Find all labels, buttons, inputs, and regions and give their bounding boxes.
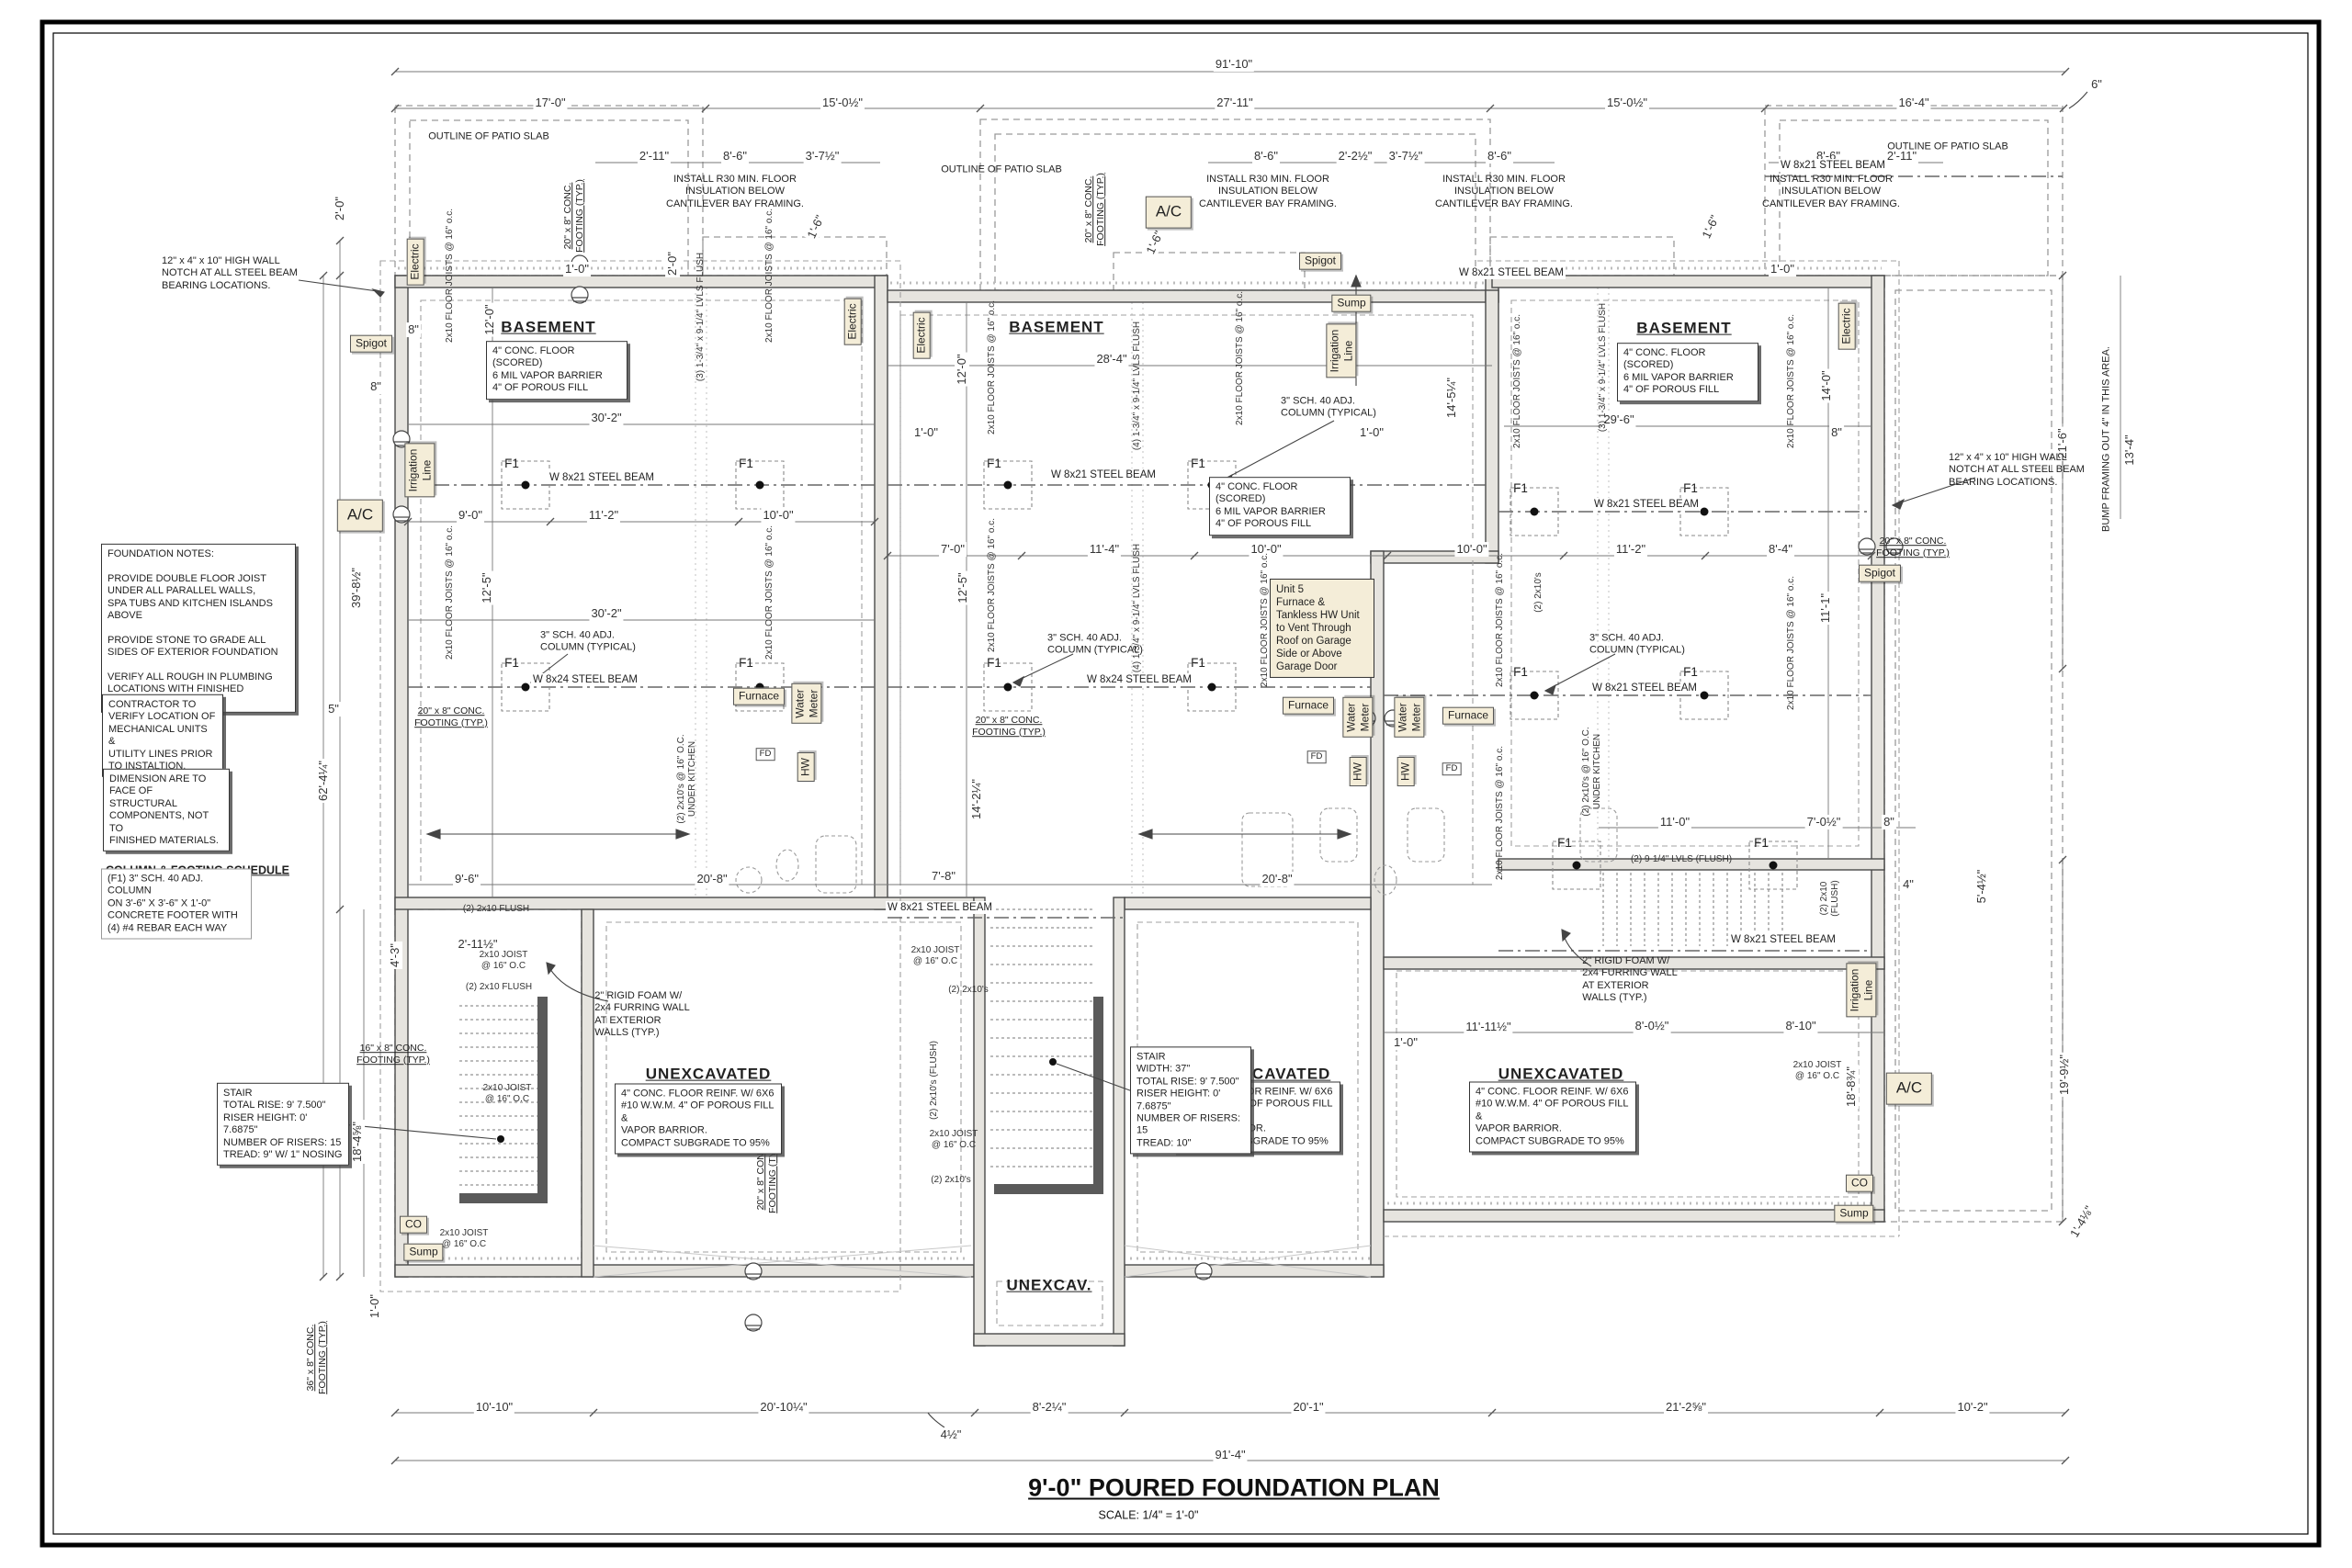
dimension-label: 2'-0" (333, 195, 347, 222)
dimension-label: 9'-6" (453, 872, 481, 886)
joist-label: (2) 2x10's (1533, 572, 1544, 613)
dimension-label: 20'-1" (1291, 1400, 1325, 1415)
column-marker-f1: F1 (987, 457, 1001, 471)
dimension-label: 12'-0" (482, 302, 497, 336)
footing-note: 20" x 8" CONC. FOOTING (TYP.) (972, 715, 1046, 739)
annotation: INSTALL R30 MIN. FLOOR INSULATION BELOW … (1435, 174, 1573, 210)
dimension-label: 8" (1882, 815, 1896, 829)
ac-tag: A/C (1146, 197, 1192, 229)
joist-label: (2) 2x10's @ 16" O.C. UNDER KITCHEN (676, 734, 698, 823)
dimension-label: 62'-4¼" (316, 759, 331, 803)
dimension-label: 2'-0" (665, 250, 680, 277)
sump-tag: Sump (1834, 1205, 1873, 1223)
dimension-label: 30'-2" (589, 411, 623, 425)
column-marker-f1: F1 (1191, 656, 1205, 671)
room-label-basement: BASEMENT (1009, 319, 1103, 338)
dimension-label: 8'-6" (721, 149, 749, 164)
dimension-label: 21'-2⅝" (1664, 1400, 1708, 1415)
column-marker-f1: F1 (987, 656, 1001, 671)
dimension-label: 18'-8¾" (1844, 1065, 1859, 1109)
dimension-label: 11'-11½" (1464, 1020, 1512, 1034)
joist-label: (3) 1-3/4" x 9-1/4" LVLS FLUSH (695, 253, 707, 381)
column-marker-f1: F1 (1513, 481, 1528, 496)
stair-note: STAIR TOTAL RISE: 9' 7.500" RISER HEIGHT… (217, 1083, 349, 1166)
annotation: 3" SCH. 40 ADJ. COLUMN (TYPICAL) (1281, 396, 1376, 421)
column-marker-f1: F1 (1683, 665, 1698, 680)
note-box: 4" CONC. FLOOR REINF. W/ 6X6 #10 W.W.M. … (615, 1083, 782, 1154)
footing-schedule: (F1) 3" SCH. 40 ADJ. COLUMN ON 3'-6" X 3… (101, 868, 252, 939)
drawing-title: 9'-0" POURED FOUNDATION PLAN (1028, 1473, 1440, 1504)
dimension-label: 19'-9½" (2057, 1053, 2072, 1097)
furnace-tag: Furnace (1283, 697, 1334, 715)
dimension-label: 15'-0½" (820, 96, 865, 110)
annotation: INSTALL R30 MIN. FLOOR INSULATION BELOW … (1762, 174, 1900, 210)
dimension-label: 39'-8½" (349, 566, 364, 610)
dimension-label: 8'-6" (1486, 149, 1513, 164)
dimension-label: 2'-11" (638, 149, 671, 164)
electric-tag: Electric (407, 238, 424, 285)
beam-label: W 8x21 STEEL BEAM (1729, 933, 1837, 946)
dimension-label: 8" (368, 379, 383, 394)
column-marker-f1: F1 (1513, 665, 1528, 680)
footing-note: 20" x 8" CONC. FOOTING (TYP.) (562, 179, 586, 253)
column-marker-f1: F1 (739, 457, 753, 471)
joist-label: (2) 2x10's (931, 1175, 971, 1186)
dimension-label: 6" (2089, 77, 2104, 92)
joist-label: 2x10 FLOOR JOISTS @ 16" o.c. (1786, 576, 1797, 710)
beam-label: W 8x21 STEEL BEAM (1457, 266, 1566, 279)
electric-tag: Electric (844, 298, 862, 344)
joist-label: (2) 9-1/4" LVLS (FLUSH) (1631, 854, 1732, 865)
annotation: OUTLINE OF PATIO SLAB (428, 130, 549, 142)
joist-label: 2x10 FLOOR JOISTS @ 16" o.c. (764, 209, 775, 343)
dimension-label: 8" (1829, 425, 1844, 440)
dimension-label: 28'-4" (1094, 352, 1128, 367)
furnace-tag: Furnace (1442, 707, 1494, 725)
spigot-tag: Spigot (1299, 253, 1341, 270)
ac-tag: A/C (1886, 1073, 1932, 1105)
column-marker-f1: F1 (1557, 836, 1572, 851)
fd-tag: FD (1442, 762, 1462, 775)
joist-label: 2x10 JOIST @ 16" O.C (480, 950, 528, 972)
room-label-unexcav: UNEXCAV. (1006, 1277, 1091, 1296)
dimension-label: 8'-4" (1767, 542, 1794, 557)
joist-label: 2x10 FLOOR JOISTS @ 16" o.c. (1495, 553, 1506, 687)
dimension-label: 1'-0" (1358, 425, 1385, 440)
room-label-basement: BASEMENT (501, 319, 595, 338)
beam-label: W 8x21 STEEL BEAM (1590, 682, 1699, 694)
annotation: 2" RIGID FOAM W/ 2x4 FURRING WALL AT EXT… (1582, 955, 1678, 1005)
unit5-note: Unit 5 Furnace & Tankless HW Unit to Ven… (1270, 579, 1374, 678)
spigot-tag: Spigot (350, 335, 392, 353)
beam-label: W 8x24 STEEL BEAM (531, 673, 639, 686)
contractor-note: CONTRACTOR TO VERIFY LOCATION OF MECHANI… (102, 694, 223, 777)
beam-label: W 8x21 STEEL BEAM (886, 901, 994, 914)
dimension-label: 1'-0" (563, 262, 591, 276)
dimension-label: 15'-0½" (1605, 96, 1649, 110)
annotation: OUTLINE OF PATIO SLAB (941, 164, 1062, 175)
dimension-label: 3'-7½" (804, 149, 842, 164)
dimension-label: 11'-1" (1818, 592, 1833, 625)
beam-label: W 8x21 STEEL BEAM (1779, 159, 1887, 172)
plan-annotations: 91'-10"17'-0"15'-0½"27'-11"15'-0½"16'-4"… (0, 0, 2352, 1568)
dimension-label: 7'-0½" (1805, 815, 1843, 829)
joist-label: 2x10 JOIST @ 16" O.C (1793, 1060, 1842, 1082)
joist-label: (2) 2x10's (FLUSH) (929, 1041, 940, 1120)
dimension-label: 11'-2" (1614, 542, 1647, 557)
dimension-label: 5" (326, 702, 341, 716)
annotation: INSTALL R30 MIN. FLOOR INSULATION BELOW … (666, 174, 804, 210)
dimension-label: 10'-0" (761, 508, 795, 523)
dimension-label: 20'-8" (1260, 872, 1294, 886)
electric-tag: Electric (913, 311, 931, 358)
room-label-basement: BASEMENT (1636, 320, 1731, 339)
footing-note: 20" x 8" CONC. FOOTING (TYP.) (1876, 536, 1950, 559)
dimension-label: 1'-0" (1392, 1035, 1419, 1050)
note-box: 4" CONC. FLOOR (SCORED) 6 MIL VAPOR BARR… (486, 341, 628, 400)
dimension-label: 1'-6" (1698, 211, 1723, 243)
dimension-label: 1'-0" (912, 425, 940, 440)
annotation: 3" SCH. 40 ADJ. COLUMN (TYPICAL) (1589, 633, 1685, 658)
dimension-label: 11'-2" (587, 508, 620, 523)
joist-label: 2x10 FLOOR JOISTS @ 16" o.c. (445, 525, 456, 660)
dimension-label: 4'-3" (388, 942, 402, 969)
dimension-label: 1'-6" (803, 211, 828, 243)
annotation: 3" SCH. 40 ADJ. COLUMN (TYPICAL) (1047, 633, 1143, 658)
room-label-unexcavated: UNEXCAVATED (646, 1066, 772, 1085)
dimension-label: 8'-10" (1783, 1019, 1817, 1033)
joist-label: (2) 2x10 FLUSH (466, 982, 532, 993)
joist-label: 2x10 JOIST @ 16" O.C (483, 1083, 532, 1105)
dimension-label: 18'-4⅝" (350, 1120, 365, 1164)
co-tag: CO (400, 1216, 427, 1234)
electric-tag: Electric (1838, 302, 1856, 349)
annotation: BUMP FRAMING OUT 4" IN THIS AREA. (2100, 346, 2112, 532)
water-meter-tag: Water Meter (791, 683, 821, 724)
dimension-label: 1'-6" (1142, 227, 1167, 258)
joist-label: (3) 1-3/4" x 9-1/4" LVLS FLUSH (1598, 303, 1609, 432)
joist-label: 2x10 FLOOR JOISTS @ 16" o.c. (445, 209, 456, 343)
water-meter-tag: Water Meter (1342, 697, 1373, 738)
column-marker-f1: F1 (739, 656, 753, 671)
dimension-label: 4½" (939, 1427, 964, 1442)
irrigation-tag: Irrigation Line (1846, 964, 1876, 1018)
co-tag: CO (1846, 1175, 1873, 1192)
irrigation-tag: Irrigation Line (404, 444, 435, 498)
dimension-label: 3'-7½" (1387, 149, 1425, 164)
ac-tag: A/C (337, 500, 383, 532)
dimension-label: 10'-2" (1955, 1400, 1989, 1415)
footing-note: 20" x 8" CONC. FOOTING (TYP.) (414, 705, 488, 729)
irrigation-tag: Irrigation Line (1326, 324, 1356, 378)
joist-label: (2) 2x10 FLUSH (463, 904, 529, 915)
annotation: INSTALL R30 MIN. FLOOR INSULATION BELOW … (1199, 174, 1337, 210)
dimension-label: 20'-8" (695, 872, 729, 886)
dimension-label: 8'-0½" (1634, 1019, 1671, 1033)
stair-note: STAIR WIDTH: 37" TOTAL RISE: 9' 7.500" R… (1130, 1046, 1251, 1154)
furnace-tag: Furnace (733, 688, 785, 705)
dimension-label: 91'-10" (1214, 57, 1254, 72)
beam-label: W 8x21 STEEL BEAM (1049, 468, 1158, 481)
sump-tag: Sump (403, 1244, 443, 1261)
dimension-label: 1'-0" (367, 1292, 382, 1320)
dimension-label: 10'-10" (474, 1400, 514, 1415)
fd-tag: FD (1307, 750, 1327, 763)
sump-tag: Sump (1331, 295, 1371, 312)
annotation: 3" SCH. 40 ADJ. COLUMN (TYPICAL) (540, 630, 636, 655)
joist-label: (2) 2x10 (FLUSH) (1819, 880, 1841, 916)
annotation: 2" RIGID FOAM W/ 2x4 FURRING WALL AT EXT… (594, 990, 690, 1040)
dimension-label: 14'-5¼" (1444, 376, 1459, 420)
dimension-label: 12'-5" (480, 570, 494, 604)
dimension-label: 11'-0" (1658, 815, 1691, 829)
column-marker-f1: F1 (1754, 836, 1769, 851)
dimension-label: 11'-4" (1088, 542, 1121, 557)
beam-label: W 8x21 STEEL BEAM (548, 471, 656, 484)
joist-label: (2) 2x10's (948, 985, 989, 996)
note-box: 4" CONC. FLOOR REINF. W/ 6X6 #10 W.W.M. … (1469, 1081, 1636, 1152)
hw-tag: HW (797, 752, 815, 782)
joist-label: 2x10 JOIST @ 16" O.C (440, 1228, 489, 1250)
dimension-label: 1'-0" (1769, 262, 1796, 276)
joist-label: (2) 2x10's @ 16" O.C. UNDER KITCHEN (1581, 727, 1603, 816)
joist-label: 2x10 FLOOR JOISTS @ 16" o.c. (1495, 746, 1506, 880)
dimension-label: 17'-0" (533, 96, 567, 110)
joist-label: 2x10 JOIST @ 16" O.C (930, 1129, 978, 1151)
dimension-label: 13'-4" (2122, 433, 2137, 467)
dimension-label: 20'-10¼" (758, 1400, 808, 1415)
foundation-notes: FOUNDATION NOTES: PROVIDE DOUBLE FLOOR J… (101, 544, 296, 713)
note-box: 4" CONC. FLOOR (SCORED) 6 MIL VAPOR BARR… (1209, 477, 1351, 536)
joist-label: 2x10 FLOOR JOISTS @ 16" o.c. (1512, 314, 1523, 448)
dimension-label: 30'-2" (589, 606, 623, 621)
joist-label: 2x10 FLOOR JOISTS @ 16" o.c. (987, 518, 998, 652)
footing-note: 20" x 8" CONC. FOOTING (TYP.) (1083, 173, 1107, 246)
note-box: 4" CONC. FLOOR (SCORED) 6 MIL VAPOR BARR… (1617, 343, 1758, 401)
dimension-label: 5'-4½" (1974, 868, 1989, 906)
dimension-label: 12'-0" (955, 352, 969, 386)
dimension-label: 10'-0" (1454, 542, 1488, 557)
column-marker-f1: F1 (504, 656, 519, 671)
dimension-label: 12'-5" (955, 570, 970, 604)
dimension-label: 2'-2½" (1337, 149, 1374, 164)
joist-label: 2x10 FLOOR JOISTS @ 16" o.c. (1235, 291, 1246, 425)
dimension-label: 8'-6" (1252, 149, 1280, 164)
dimension-label: 1'-4⅛" (2066, 1201, 2098, 1241)
joist-label: 2x10 JOIST @ 16" O.C (911, 945, 960, 967)
foundation-plan-sheet: 91'-10"17'-0"15'-0½"27'-11"15'-0½"16'-4"… (0, 0, 2352, 1568)
dimension-label: 8'-2¼" (1031, 1400, 1069, 1415)
dimension-label: 4" (1901, 877, 1916, 892)
beam-label: W 8x24 STEEL BEAM (1085, 673, 1193, 686)
beam-label: W 8x21 STEEL BEAM (1592, 498, 1701, 511)
dimension-label: 9'-0" (457, 508, 484, 523)
annotation: 12" x 4" x 10" HIGH WALL NOTCH AT ALL ST… (1949, 452, 2085, 489)
dimension-label: 14'-2¼" (969, 777, 984, 821)
drawing-scale: SCALE: 1/4" = 1'-0" (1099, 1508, 1199, 1522)
dimension-label: 7'-0" (939, 542, 967, 557)
annotation: OUTLINE OF PATIO SLAB (1887, 141, 2008, 152)
dimension-label: 91'-4" (1213, 1448, 1247, 1462)
joist-label: 2x10 FLOOR JOISTS @ 16" o.c. (1786, 314, 1797, 448)
dimension-label: 16'-4" (1896, 96, 1930, 110)
footing-note: 36" x 8" CONC. FOOTING (TYP.) (305, 1321, 329, 1394)
dimension-label: 8" (406, 322, 421, 337)
annotation: 12" x 4" x 10" HIGH WALL NOTCH AT ALL ST… (162, 255, 298, 292)
hw-tag: HW (1397, 757, 1415, 786)
dimension-note: DIMENSION ARE TO FACE OF STRUCTURAL COMP… (103, 769, 230, 852)
dimension-label: 7'-8" (930, 869, 957, 884)
joist-label: (4) 1-3/4" x 9-1/4" LVLS FLUSH (1132, 321, 1143, 450)
fd-tag: FD (756, 748, 775, 761)
column-marker-f1: F1 (1191, 457, 1205, 471)
water-meter-tag: Water Meter (1394, 697, 1424, 738)
footing-note: 16" x 8" CONC. FOOTING (TYP.) (356, 1043, 430, 1066)
joist-label: 2x10 FLOOR JOISTS @ 16" o.c. (764, 525, 775, 660)
joist-label: 2x10 FLOOR JOISTS @ 16" o.c. (987, 300, 998, 434)
dimension-label: 14'-0" (1819, 368, 1834, 402)
spigot-tag: Spigot (1859, 565, 1901, 582)
column-marker-f1: F1 (1683, 481, 1698, 496)
column-marker-f1: F1 (504, 457, 519, 471)
hw-tag: HW (1350, 757, 1367, 786)
dimension-label: 27'-11" (1215, 96, 1254, 110)
